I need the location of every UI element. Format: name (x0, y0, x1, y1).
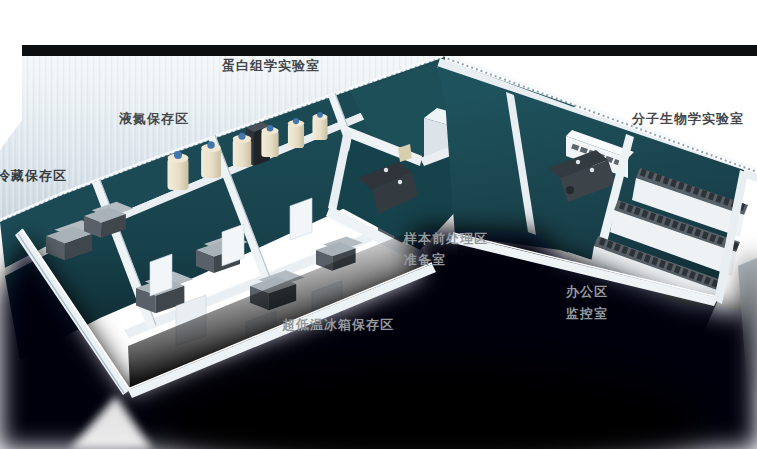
floorplan-render (0, 0, 757, 449)
label-liquid-nitrogen-storage: 液氮保存区 (119, 111, 189, 127)
label-preparation-room: 准备室 (404, 252, 446, 268)
lab-3d-floorplan: 蛋白组学实验室 液氮保存区 冷藏保存区 分子生物学实验室 样本前处理区 准备室 … (0, 0, 757, 449)
label-office-area: 办公区 (566, 284, 608, 300)
horizon-bar (22, 45, 757, 56)
label-molecular-biology-lab: 分子生物学实验室 (632, 111, 744, 127)
label-sample-pretreatment: 样本前处理区 (404, 231, 488, 247)
label-cold-storage: 冷藏保存区 (0, 168, 67, 184)
label-proteomics-lab: 蛋白组学实验室 (222, 58, 320, 74)
label-ult-freezer-storage: 超低温冰箱保存区 (282, 317, 394, 333)
label-monitoring-room: 监控室 (566, 306, 608, 322)
